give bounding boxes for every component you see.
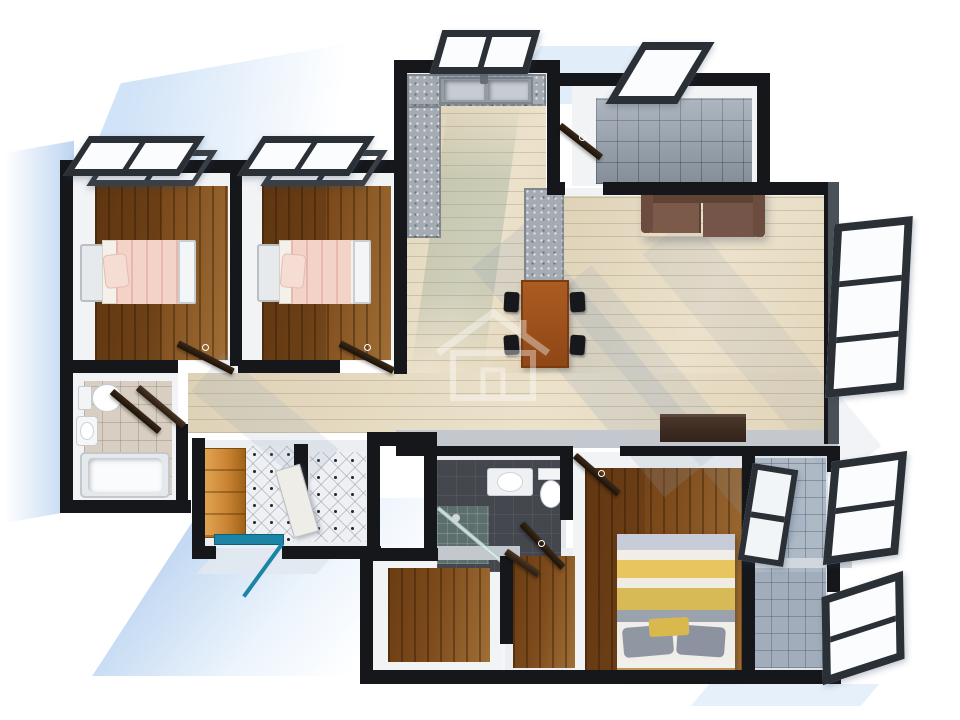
sofa-armrest-right xyxy=(753,189,765,237)
kitchen-sink-basin-left xyxy=(444,80,484,100)
utility-floor xyxy=(596,98,752,184)
wall-entry-left xyxy=(192,438,205,559)
frame-mullion xyxy=(295,143,318,169)
kitchen-counter-left xyxy=(407,106,441,238)
frame-mullion xyxy=(839,275,902,288)
master-toilet-bowl xyxy=(540,480,562,508)
wall-kitchen-right xyxy=(547,60,560,187)
bed1-headboard xyxy=(80,244,104,302)
frame-mullion xyxy=(836,331,899,344)
corridor-floor xyxy=(513,556,575,668)
bed-stripe-white-1 xyxy=(617,550,735,560)
bed2-headboard xyxy=(257,244,281,302)
wall-hall-south-mid xyxy=(367,432,437,446)
master-bed xyxy=(617,534,735,676)
wall-smallroom-left xyxy=(360,556,373,677)
frame-mullion xyxy=(750,511,785,522)
bedroom-2-door-handle xyxy=(364,344,371,351)
frame-mullion xyxy=(835,500,894,514)
master-bedroom-door-handle xyxy=(598,470,605,477)
wall-bedroom-divider xyxy=(230,173,242,366)
wall-living-bottom-b xyxy=(620,446,839,456)
floor-plan-render xyxy=(0,0,960,720)
bed-stripe-yellow-2 xyxy=(617,588,735,610)
utility-door-handle xyxy=(579,134,586,141)
bed-stripe-yellow-1 xyxy=(617,560,735,578)
toilet-tank-1 xyxy=(78,386,92,410)
master-washbasin-bowl xyxy=(497,472,523,492)
wall-bathroom1-bottom xyxy=(60,500,191,513)
tv-cabinet xyxy=(660,414,746,442)
wall-kitchen-left xyxy=(394,60,407,374)
bed1-footboard xyxy=(178,240,196,304)
frame-mullion xyxy=(830,615,896,642)
wall-smallroom-top xyxy=(360,548,438,561)
wall-bathroom1-right xyxy=(176,424,188,506)
washbasin-1-bowl xyxy=(80,422,94,440)
bed-stripe-grey-1 xyxy=(617,534,735,550)
wall-bedrooms-bottom-a xyxy=(60,360,178,373)
wall-utility-right xyxy=(757,73,770,188)
bed-pillow-accent xyxy=(649,617,690,637)
wall-outer-bottom xyxy=(360,670,753,684)
dining-chair-4 xyxy=(569,335,585,356)
dining-chair-3 xyxy=(569,292,585,313)
entrance-door-threshold xyxy=(214,534,284,545)
wall-entry-right xyxy=(367,444,380,555)
wall-outer-left xyxy=(60,160,73,513)
sofa-seat-right xyxy=(703,203,755,237)
entry-wardrobe xyxy=(204,448,246,538)
wall-living-top-b xyxy=(603,182,839,195)
sofa-seat-left xyxy=(651,203,701,233)
shower-head xyxy=(452,514,460,522)
bed-stripe-white-2 xyxy=(617,578,735,588)
house-logo-watermark xyxy=(428,298,558,408)
bed2-pillow xyxy=(280,253,307,289)
balcony-open-window-upper xyxy=(823,451,907,565)
wall-smallroom-right xyxy=(500,556,513,644)
bed-sheet-edge xyxy=(617,660,735,668)
kitchen-sink-basin-right xyxy=(488,80,528,100)
wall-living-bottom-a xyxy=(396,446,568,456)
living-room-open-window xyxy=(825,216,913,398)
sofa xyxy=(641,189,765,237)
bed1-pillow xyxy=(102,253,129,289)
bedroom-1-door-handle xyxy=(202,344,209,351)
bathtub-inner xyxy=(88,458,162,492)
sofa-armrest-left xyxy=(641,189,653,233)
kitchen-window xyxy=(430,30,541,74)
frame-mullion xyxy=(123,143,146,169)
wall-entry-bottom-a xyxy=(192,546,216,559)
bed2-footboard xyxy=(353,240,371,304)
small-room-floor xyxy=(388,568,490,662)
shadow-under-plan xyxy=(691,684,879,706)
wall-living-top-a xyxy=(547,182,565,195)
wall-masterbath-left xyxy=(424,446,437,558)
master-bathroom-door-handle xyxy=(538,540,545,547)
wall-bedrooms-bottom-b xyxy=(238,360,340,373)
frame-mullion xyxy=(478,37,493,67)
kitchen-pillar xyxy=(524,188,564,284)
wall-masterbath-right xyxy=(560,446,573,520)
